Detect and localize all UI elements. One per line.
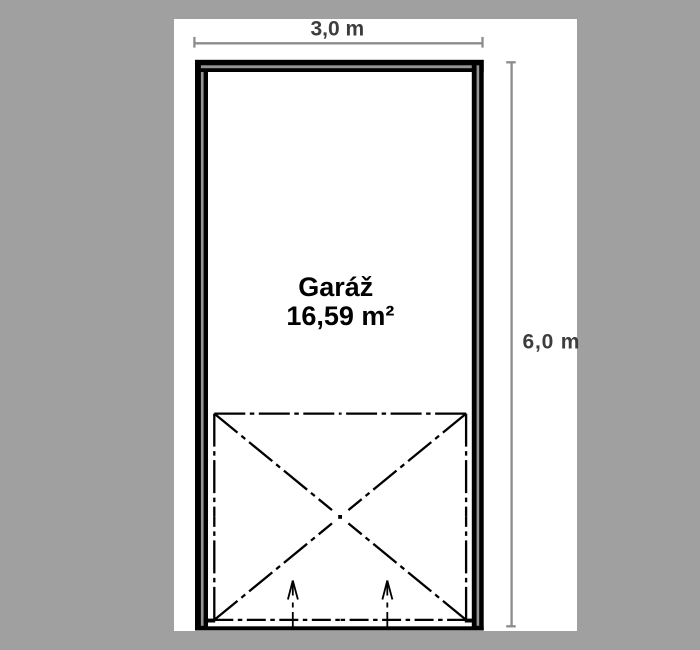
svg-text:6,0 m: 6,0 m [523, 330, 581, 353]
svg-text:Garáž: Garáž [298, 272, 373, 302]
svg-text:16,59 m²: 16,59 m² [286, 301, 394, 331]
svg-text:3,0 m: 3,0 m [310, 18, 364, 41]
